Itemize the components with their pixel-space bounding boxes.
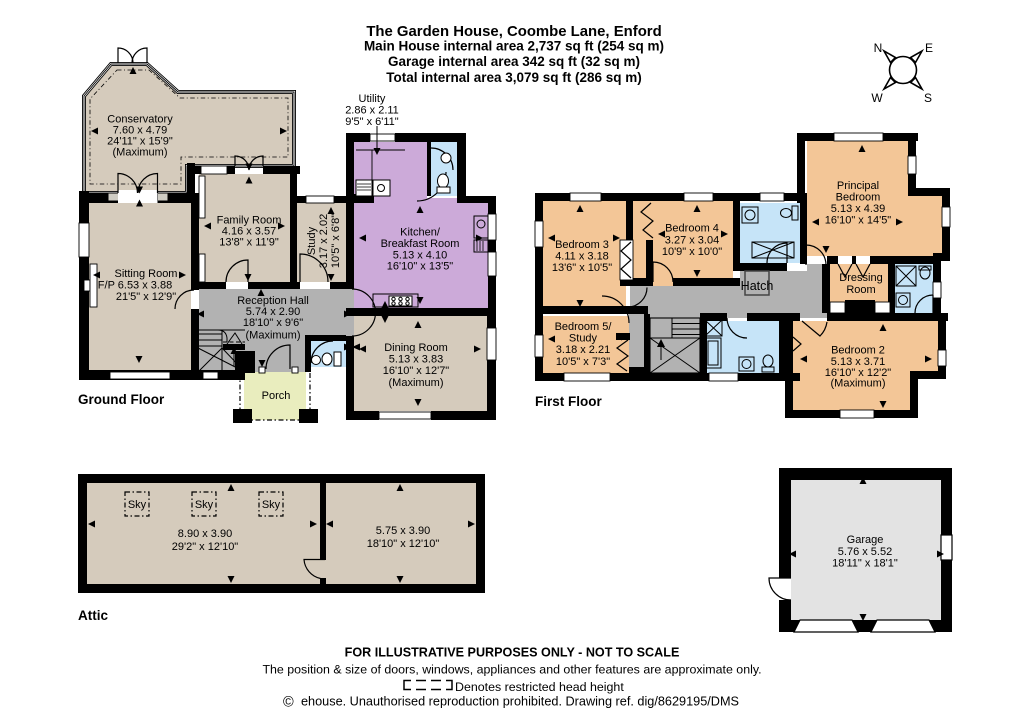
svg-text:Utility: Utility xyxy=(359,93,386,105)
svg-text:8.90 x 3.90: 8.90 x 3.90 xyxy=(178,528,232,540)
svg-text:16'10" x 13'5": 16'10" x 13'5" xyxy=(387,261,454,273)
svg-text:Sky: Sky xyxy=(262,499,281,511)
svg-text:(Maximum): (Maximum) xyxy=(831,378,886,390)
svg-text:FOR ILLUSTRATIVE PURPOSES ONLY: FOR ILLUSTRATIVE PURPOSES ONLY - NOT TO … xyxy=(345,646,680,660)
svg-text:21'5" x 12'9": 21'5" x 12'9" xyxy=(116,291,176,303)
svg-text:First Floor: First Floor xyxy=(535,394,602,409)
svg-text:Sitting Room: Sitting Room xyxy=(115,268,178,280)
svg-text:Kitchen/: Kitchen/ xyxy=(400,227,441,239)
svg-text:Room: Room xyxy=(846,284,875,296)
svg-text:E: E xyxy=(925,41,933,55)
svg-text:©: © xyxy=(283,695,294,711)
svg-text:Breakfast Room: Breakfast Room xyxy=(381,238,460,250)
svg-text:Ground Floor: Ground Floor xyxy=(78,392,165,407)
svg-text:10'5" x 7'3": 10'5" x 7'3" xyxy=(556,356,610,368)
svg-text:5.75 x 3.90: 5.75 x 3.90 xyxy=(376,525,430,537)
svg-text:10'5" x 6'8": 10'5" x 6'8" xyxy=(330,214,342,268)
svg-text:16'10" x 14'5": 16'10" x 14'5" xyxy=(825,215,892,227)
svg-text:Bedroom 2: Bedroom 2 xyxy=(831,345,885,357)
svg-text:Bedroom 3: Bedroom 3 xyxy=(555,239,609,251)
svg-text:S: S xyxy=(924,91,932,105)
svg-text:5.13 x 3.83: 5.13 x 3.83 xyxy=(389,354,443,366)
svg-text:2.86 x 2.11: 2.86 x 2.11 xyxy=(345,105,399,117)
svg-text:4.11 x 3.18: 4.11 x 3.18 xyxy=(555,251,609,263)
svg-text:13'6" x 10'5": 13'6" x 10'5" xyxy=(552,262,612,274)
svg-text:(Maximum): (Maximum) xyxy=(246,330,301,342)
svg-text:18'11" x 18'1": 18'11" x 18'1" xyxy=(832,558,898,570)
svg-text:18'10" x 9'6": 18'10" x 9'6" xyxy=(243,317,303,329)
svg-text:Hatch: Hatch xyxy=(741,279,774,293)
svg-text:3.17 x 2.02: 3.17 x 2.02 xyxy=(318,214,330,268)
svg-text:Study: Study xyxy=(569,333,598,345)
svg-text:Principal: Principal xyxy=(837,180,879,192)
svg-text:Sky: Sky xyxy=(128,499,147,511)
svg-text:(Maximum): (Maximum) xyxy=(113,147,168,159)
svg-text:The position & size of doors,: The position & size of doors, windows, a… xyxy=(262,663,761,677)
svg-text:3.18 x 2.21: 3.18 x 2.21 xyxy=(556,344,610,356)
svg-text:16'10" x 12'7": 16'10" x 12'7" xyxy=(383,365,450,377)
svg-text:(Maximum): (Maximum) xyxy=(389,377,444,389)
svg-text:Bedroom 5/: Bedroom 5/ xyxy=(555,321,613,333)
svg-text:3.27 x 3.04: 3.27 x 3.04 xyxy=(665,235,719,247)
svg-text:W: W xyxy=(871,91,883,105)
svg-text:Attic: Attic xyxy=(78,608,108,623)
svg-text:Bedroom 4: Bedroom 4 xyxy=(665,223,719,235)
svg-text:Total internal area 3,079 sq f: Total internal area 3,079 sq ft (286 sq … xyxy=(386,70,642,85)
svg-text:Bedroom: Bedroom xyxy=(836,192,881,204)
svg-text:N: N xyxy=(874,41,883,55)
svg-text:Main House internal area 2,737: Main House internal area 2,737 sq ft (25… xyxy=(364,39,664,54)
svg-text:5.13 x 4.39: 5.13 x 4.39 xyxy=(831,203,885,215)
svg-text:ehouse. Unauthorised reproduct: ehouse. Unauthorised reproduction prohib… xyxy=(301,695,739,709)
svg-text:Dining Room: Dining Room xyxy=(384,342,448,354)
svg-text:Porch: Porch xyxy=(262,390,291,402)
svg-text:29'2" x 12'10": 29'2" x 12'10" xyxy=(172,541,239,553)
svg-text:Garage internal area 342 sq ft: Garage internal area 342 sq ft (32 sq m) xyxy=(388,54,640,69)
svg-text:18'10" x 12'10": 18'10" x 12'10" xyxy=(367,538,440,550)
svg-text:10'9" x 10'0": 10'9" x 10'0" xyxy=(662,246,722,258)
svg-text:Dressing: Dressing xyxy=(839,272,882,284)
svg-text:Sky: Sky xyxy=(195,499,214,511)
svg-text:Denotes restricted head height: Denotes restricted head height xyxy=(455,680,624,694)
svg-text:13'8" x 11'9": 13'8" x 11'9" xyxy=(219,237,279,249)
svg-text:F/P 6.53 x 3.88: F/P 6.53 x 3.88 xyxy=(98,280,172,292)
svg-text:9'5" x 6'11": 9'5" x 6'11" xyxy=(345,116,398,128)
svg-text:Study: Study xyxy=(306,226,318,255)
svg-text:5.76 x 5.52: 5.76 x 5.52 xyxy=(838,546,892,558)
svg-text:Garage: Garage xyxy=(847,534,884,546)
